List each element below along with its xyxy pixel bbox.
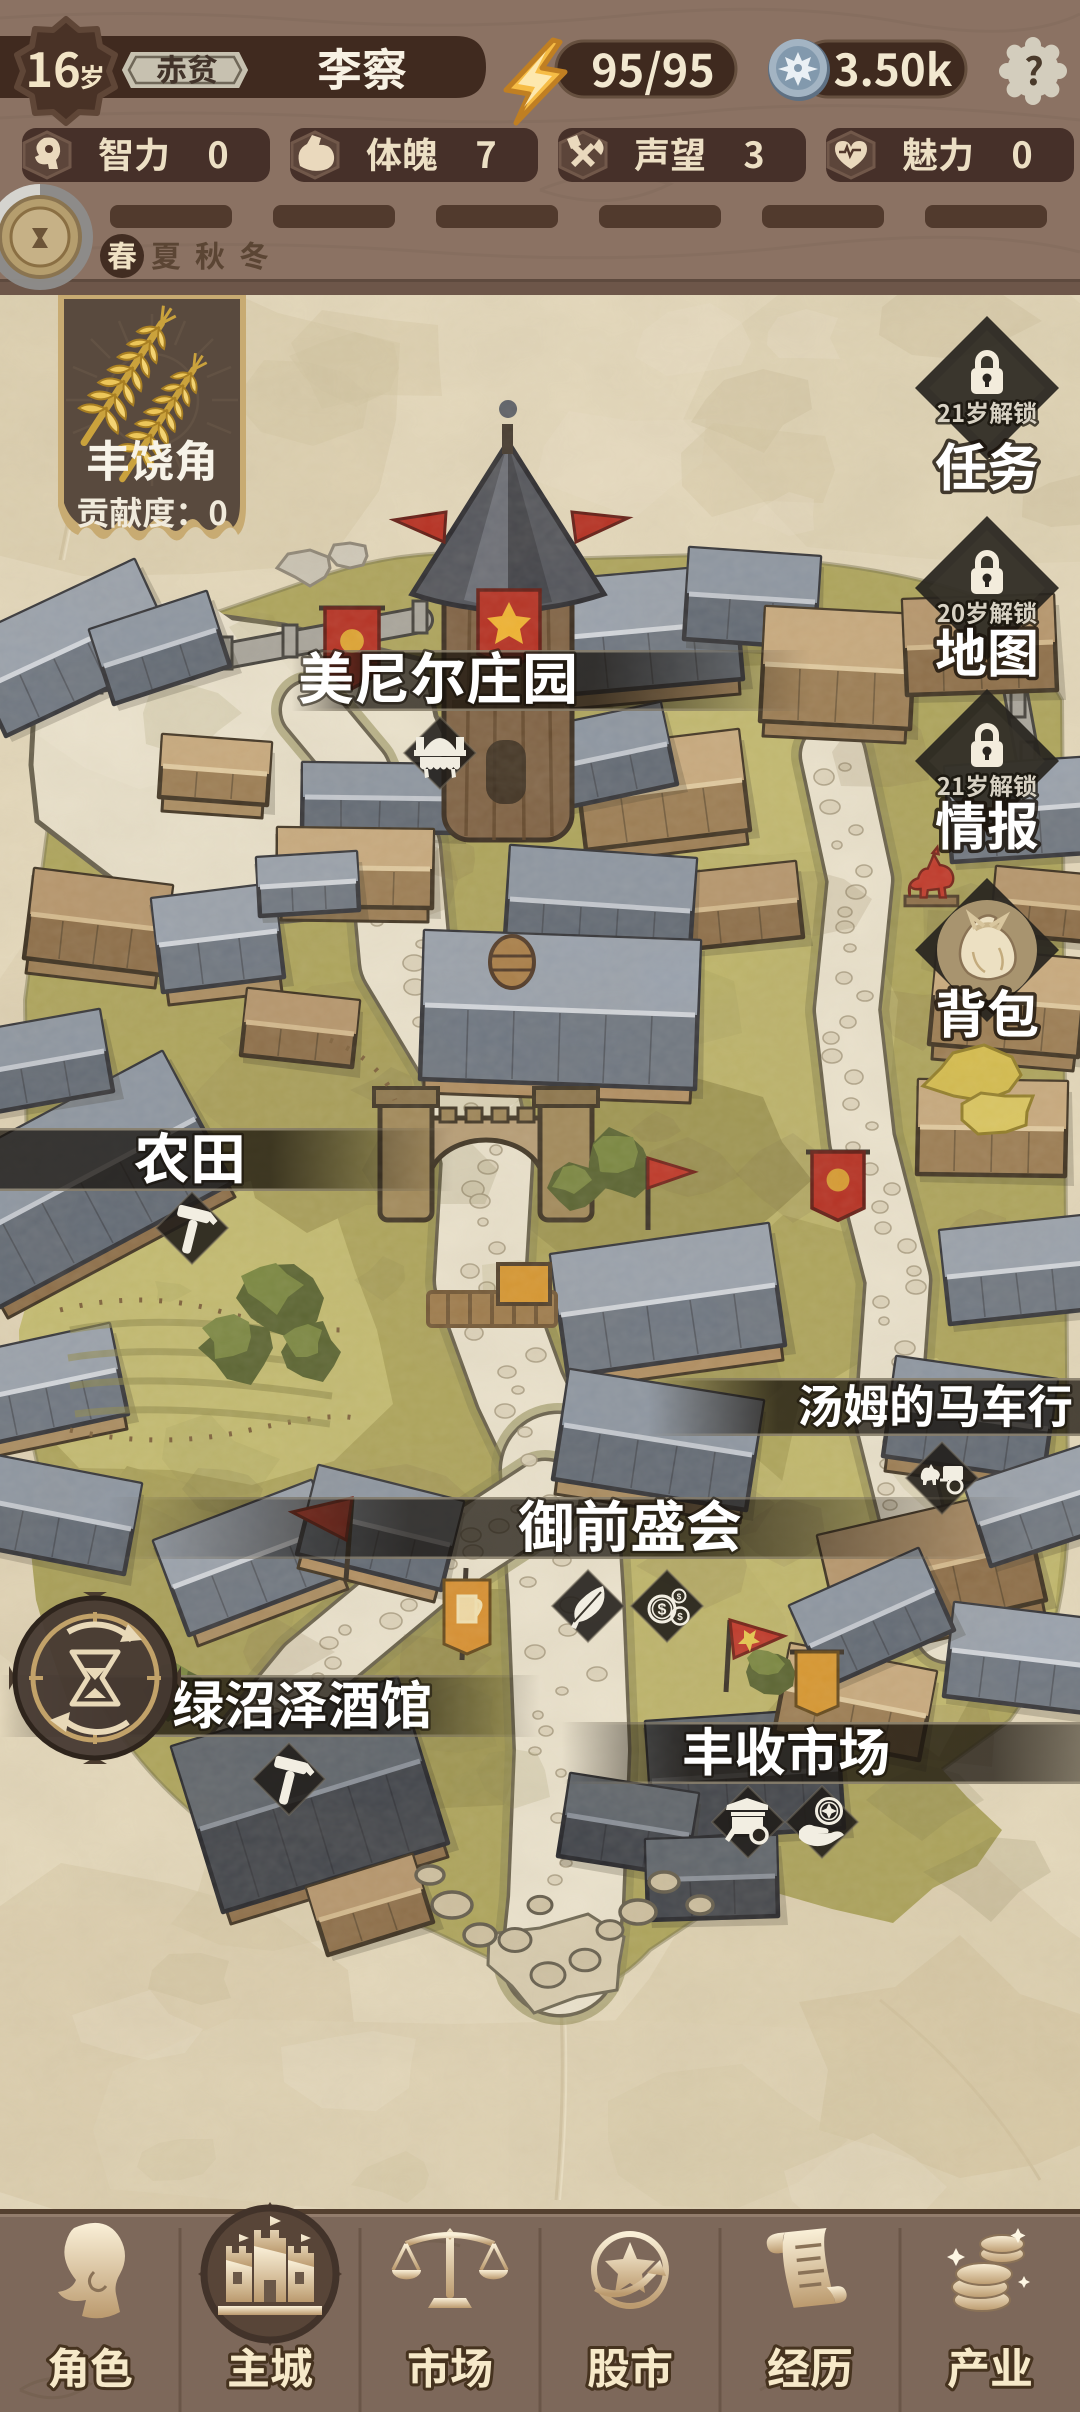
svg-text:$: $ (658, 1602, 667, 1619)
svg-text:$: $ (677, 1593, 682, 1602)
svg-text:$: $ (677, 1612, 683, 1623)
